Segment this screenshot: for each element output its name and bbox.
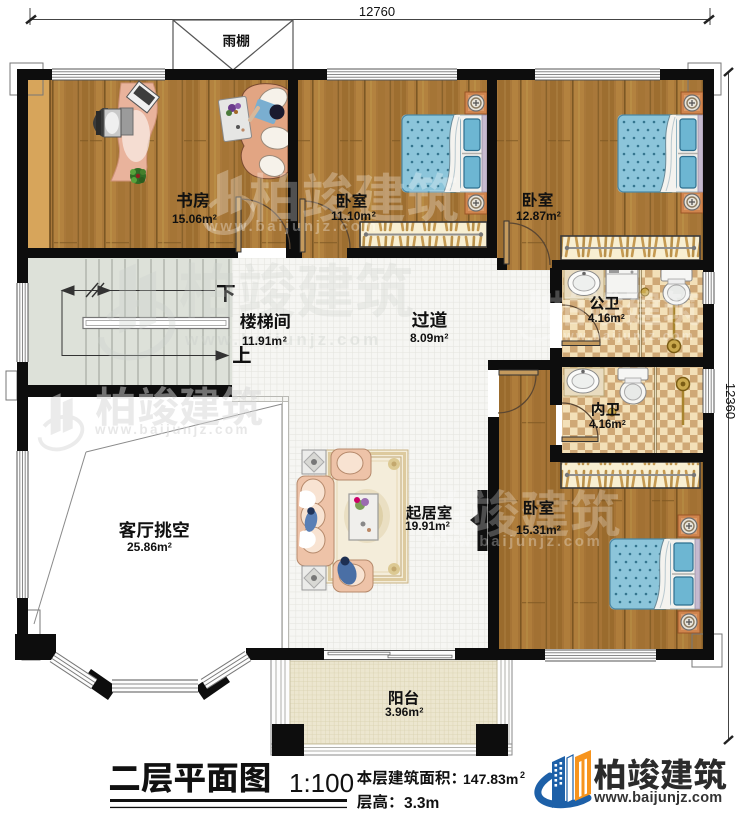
svg-text:25.86m: 25.86m [127,540,168,554]
svg-text:147.83m: 147.83m [463,771,518,787]
svg-text:1:100: 1:100 [289,768,354,798]
svg-text:2: 2 [557,210,561,219]
svg-text:8.09m: 8.09m [410,331,444,345]
svg-text:12.87m: 12.87m [516,209,557,223]
svg-text:2: 2 [520,770,525,780]
svg-text:www.baijunjz.com: www.baijunjz.com [593,790,722,806]
svg-text:2: 2 [283,335,287,344]
svg-text:15.31m: 15.31m [516,523,557,537]
svg-text:15.06m: 15.06m [172,212,213,226]
svg-text:3.96m: 3.96m [385,705,419,719]
svg-text:www.baijunjz.com: www.baijunjz.com [94,422,250,437]
svg-text:12760: 12760 [359,4,395,19]
svg-text:2: 2 [372,210,376,219]
svg-text:3.3m: 3.3m [404,795,439,812]
svg-text:2: 2 [419,706,423,715]
svg-text:4.16m: 4.16m [588,313,621,325]
svg-text:19.91m: 19.91m [405,519,446,533]
svg-text:www.baijunjz.com: www.baijunjz.com [551,329,695,343]
svg-text:2: 2 [622,419,626,427]
svg-text:2: 2 [621,313,625,321]
svg-text:12360: 12360 [723,383,738,419]
svg-text:11.91m: 11.91m [242,334,282,348]
svg-text:2: 2 [168,541,172,550]
svg-text:2: 2 [446,520,450,529]
svg-text:2: 2 [213,213,217,222]
svg-text:4.16m: 4.16m [589,419,622,431]
svg-text:11.10m: 11.10m [331,209,371,223]
svg-text:2: 2 [444,332,448,341]
svg-text:2: 2 [557,524,561,533]
